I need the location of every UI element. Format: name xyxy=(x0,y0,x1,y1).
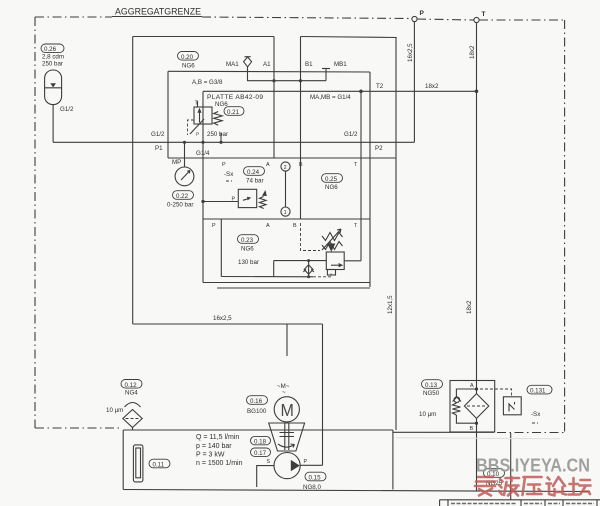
svg-text:B: B xyxy=(299,162,303,168)
svg-text:G1/4: G1/4 xyxy=(196,150,210,157)
svg-text:16x2,5: 16x2,5 xyxy=(213,315,232,322)
svg-text:250 bar: 250 bar xyxy=(42,61,63,68)
svg-text:0-250 bar: 0-250 bar xyxy=(167,202,194,209)
svg-text:2,8 cdm: 2,8 cdm xyxy=(42,54,64,61)
svg-text:M: M xyxy=(281,400,294,420)
svg-text:130 bar: 130 bar xyxy=(238,259,259,266)
svg-text:MA1: MA1 xyxy=(226,61,239,68)
svg-text:T2: T2 xyxy=(376,83,384,90)
svg-text:MP: MP xyxy=(172,159,181,166)
svg-text:G1/2: G1/2 xyxy=(151,131,165,138)
svg-text:P: P xyxy=(212,223,216,229)
svg-text:P: P xyxy=(232,197,236,203)
svg-text:G1/2: G1/2 xyxy=(60,106,74,113)
svg-text:B1: B1 xyxy=(305,61,313,68)
svg-text:A,B = G3/8: A,B = G3/8 xyxy=(192,79,223,86)
svg-text:74 bar: 74 bar xyxy=(246,178,264,185)
svg-text:250 bar: 250 bar xyxy=(207,131,228,138)
svg-text:A: A xyxy=(470,383,474,389)
svg-text:AGGREGATGRENZE: AGGREGATGRENZE xyxy=(115,7,201,17)
svg-text:NG8,0: NG8,0 xyxy=(303,484,321,491)
svg-text:G1/2: G1/2 xyxy=(344,131,358,138)
svg-text:p = 140 bar: p = 140 bar xyxy=(196,443,232,450)
svg-text:-Sx: -Sx xyxy=(531,411,541,418)
svg-text:P2: P2 xyxy=(375,145,383,152)
svg-text:18x2: 18x2 xyxy=(425,83,439,90)
svg-text:NG6: NG6 xyxy=(241,246,254,253)
svg-text:10 μm: 10 μm xyxy=(106,407,123,414)
svg-text:Q = 11,5 l/min: Q = 11,5 l/min xyxy=(196,434,239,441)
svg-text:n = 1500 1/min: n = 1500 1/min xyxy=(196,460,243,467)
svg-text:PLATTE AB42-09: PLATTE AB42-09 xyxy=(207,94,263,101)
svg-text:P1: P1 xyxy=(155,145,163,152)
svg-text:A: A xyxy=(266,223,270,229)
svg-text:16x2,5: 16x2,5 xyxy=(407,43,414,62)
svg-text:MB1: MB1 xyxy=(334,61,347,68)
svg-text:P: P xyxy=(420,10,425,17)
svg-text:P: P xyxy=(304,459,308,465)
svg-text:NG50: NG50 xyxy=(423,390,440,397)
svg-text:18x2: 18x2 xyxy=(469,45,476,59)
svg-text:10 μm: 10 μm xyxy=(419,411,436,418)
svg-text:0.26: 0.26 xyxy=(44,46,57,53)
svg-text:A1: A1 xyxy=(263,61,271,68)
svg-text:A: A xyxy=(266,162,270,168)
svg-text:BG100: BG100 xyxy=(247,408,267,415)
svg-text:B: B xyxy=(470,426,474,432)
svg-text:NG6: NG6 xyxy=(182,63,195,70)
svg-text:18x2: 18x2 xyxy=(466,300,473,314)
svg-text:P: P xyxy=(196,132,199,138)
svg-text:NG6: NG6 xyxy=(325,184,338,191)
svg-text:B: B xyxy=(293,223,297,229)
svg-text:P: P xyxy=(222,162,226,168)
svg-text:-Sx: -Sx xyxy=(224,171,234,178)
svg-text:12x1,5: 12x1,5 xyxy=(387,295,394,314)
svg-text:2: 2 xyxy=(284,165,287,171)
svg-text:BBS.IYEYA.CN: BBS.IYEYA.CN xyxy=(476,456,590,476)
svg-text:MA,MB = G1/4: MA,MB = G1/4 xyxy=(310,94,351,101)
svg-text:T: T xyxy=(482,11,486,18)
svg-text:1: 1 xyxy=(284,210,287,216)
svg-text:P = 3 kW: P = 3 kW xyxy=(196,452,225,459)
svg-text:NG4: NG4 xyxy=(125,390,138,397)
svg-text:~: ~ xyxy=(282,389,286,396)
svg-text:S: S xyxy=(267,459,271,465)
